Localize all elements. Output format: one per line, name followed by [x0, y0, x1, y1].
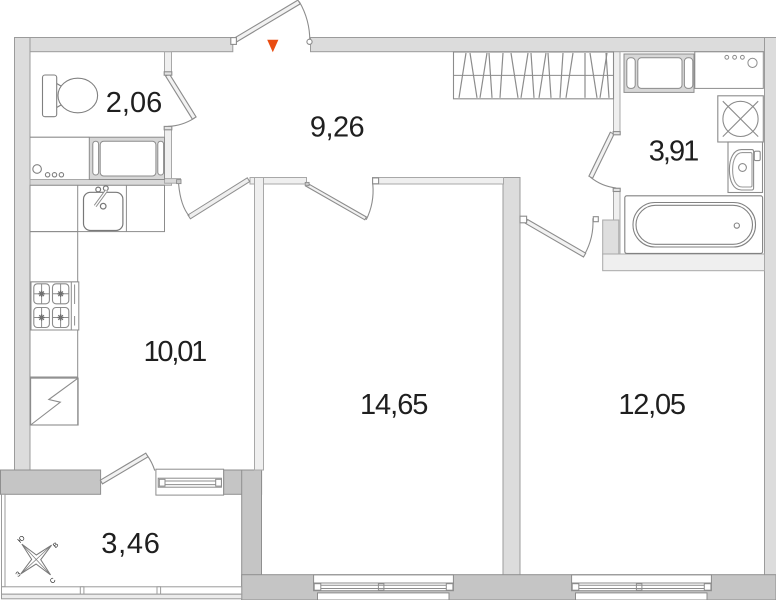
svg-text:10,01: 10,01 [144, 336, 208, 368]
svg-text:2,06: 2,06 [106, 87, 163, 119]
svg-text:12,05: 12,05 [618, 389, 686, 421]
svg-text:3,91: 3,91 [649, 135, 700, 167]
svg-text:14,65: 14,65 [360, 389, 429, 421]
svg-text:3,46: 3,46 [101, 528, 160, 560]
svg-text:9,26: 9,26 [310, 111, 365, 143]
